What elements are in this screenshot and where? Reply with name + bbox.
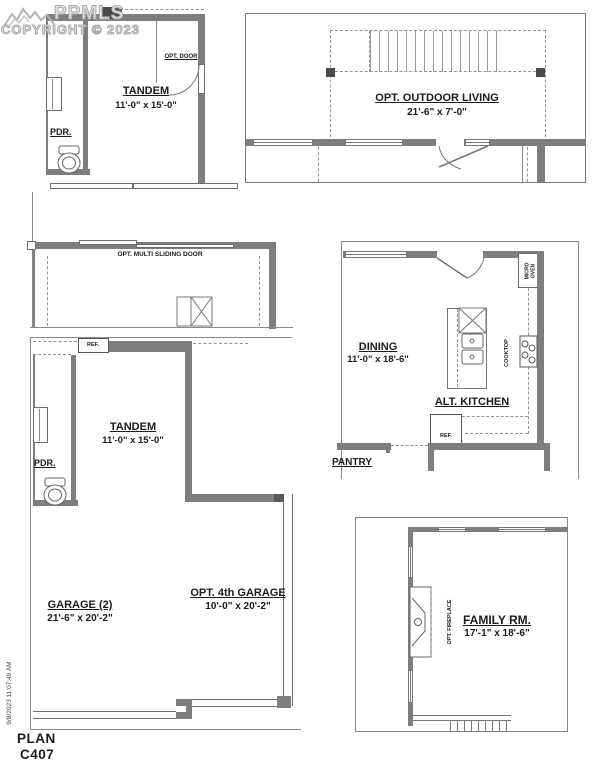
dashed-counter-line xyxy=(462,416,528,417)
post xyxy=(536,68,545,77)
panel-border xyxy=(341,241,579,242)
room-label-family: FAMILY RM. xyxy=(463,613,531,627)
wall-corner xyxy=(277,696,291,708)
wall-double-line xyxy=(283,494,293,706)
thin-line xyxy=(52,79,53,109)
room-label-alt-kitchen: ALT. KITCHEN xyxy=(435,396,509,408)
fireplace-label: OPT. FIREPLACE xyxy=(447,600,453,645)
sink-icon xyxy=(461,333,485,366)
wall-tick xyxy=(386,443,390,453)
cooktop-label: COOKTOP xyxy=(504,339,510,367)
floorplan-canvas: OPT. DOOR TANDEM 11'-0" x 15'-0" PDR. OP… xyxy=(0,0,614,768)
watermark-copyright: COPYRIGHT © 2023 xyxy=(1,22,140,37)
room-label-dining: DINING xyxy=(359,341,398,353)
toilet-icon xyxy=(40,478,70,506)
dashed-line xyxy=(193,343,248,344)
door-swing xyxy=(433,140,491,170)
room-label-pdr-upper: PDR. xyxy=(50,127,72,137)
room-dims-family: 17'-1" x 18'-6" xyxy=(464,628,529,639)
fireplace-icon xyxy=(409,586,435,660)
window-segment xyxy=(438,527,466,532)
dashed-line xyxy=(457,309,458,387)
room-label-tandem-upper: TANDEM xyxy=(123,85,169,97)
panel-border xyxy=(30,337,292,338)
thin-line xyxy=(522,146,523,182)
window-segment xyxy=(345,251,407,258)
stair-hatch xyxy=(450,720,509,732)
wall-segment xyxy=(428,450,434,471)
ref-label: REF. xyxy=(87,342,99,348)
panel-border xyxy=(30,327,293,328)
room-dims-tandem-upper: 11'-0" x 15'-0" xyxy=(115,100,177,111)
cooktop-icon xyxy=(519,335,539,369)
print-timestamp: 9/8/2023 11:07:49 AM xyxy=(6,618,16,768)
garage-door-line xyxy=(33,711,179,719)
room-label-tandem-lower: TANDEM xyxy=(110,421,156,433)
dashed-line xyxy=(33,354,71,355)
room-label-pdr-lower: PDR. xyxy=(34,458,56,468)
plan-number: C407 xyxy=(20,747,54,762)
wall-cabinet xyxy=(33,407,48,443)
dashed-line xyxy=(527,147,528,182)
thin-line xyxy=(39,409,40,441)
room-label-garage4: OPT. 4th GARAGE xyxy=(190,587,285,599)
wall-step-notch xyxy=(176,706,186,712)
dashed-line xyxy=(259,256,260,326)
wall-segment xyxy=(428,443,550,450)
cabinet-x-box xyxy=(176,296,214,328)
wall-segment xyxy=(185,494,284,502)
window-segment xyxy=(498,527,546,532)
island-x-box xyxy=(458,307,488,334)
refrigerator-box xyxy=(430,414,462,444)
wall-segment xyxy=(269,242,276,329)
ref-label: REF. xyxy=(440,433,452,439)
stair-hatch-above xyxy=(369,31,497,72)
toilet-icon xyxy=(54,146,84,174)
dashed-line xyxy=(318,147,319,182)
panel-border xyxy=(578,241,579,479)
dashed-line xyxy=(33,341,77,342)
opt-door-label: OPT. DOOR xyxy=(164,54,197,60)
sliding-door-label: OPT. MULTI SLIDING DOOR xyxy=(117,251,202,258)
wall-segment xyxy=(537,146,545,182)
room-label-pantry: PANTRY xyxy=(332,457,372,468)
dashed-line xyxy=(330,71,546,72)
door-swing-arc xyxy=(168,64,200,96)
window-segment xyxy=(345,139,403,146)
dashed-line xyxy=(115,9,204,10)
panel-border xyxy=(30,729,301,730)
wall-strip xyxy=(50,183,238,189)
room-dims-garage4: 10'-0" x 20'-2" xyxy=(205,601,270,612)
room-dims-tandem-lower: 11'-0" x 15'-0" xyxy=(102,435,164,446)
sliding-door-panel xyxy=(79,240,137,245)
micro-oven-label: MICRO OVEN xyxy=(526,263,537,280)
wall-tick xyxy=(132,183,134,189)
room-dims-garage2: 21'-6" x 20'-2" xyxy=(47,613,112,624)
wall-segment xyxy=(198,94,205,183)
wall-segment xyxy=(198,14,205,64)
wall-segment xyxy=(109,341,191,352)
thin-line xyxy=(156,21,157,83)
dashed-counter-line xyxy=(465,433,528,434)
door-swing xyxy=(435,256,487,282)
panel-border xyxy=(30,337,31,729)
dashed-line xyxy=(47,256,48,326)
window-segment xyxy=(253,139,313,146)
room-label-outdoor-living: OPT. OUTDOOR LIVING xyxy=(375,92,498,104)
wall-corner xyxy=(274,494,284,502)
wall-segment xyxy=(185,341,192,498)
wall-segment xyxy=(337,443,391,450)
oven-label: OVEN xyxy=(530,264,536,278)
room-label-garage2: GARAGE (2) xyxy=(48,599,113,611)
post xyxy=(326,68,335,77)
room-dims-dining: 11'-0" x 18'-6" xyxy=(347,354,409,365)
wall-segment xyxy=(544,450,550,471)
panel-border xyxy=(355,517,568,732)
dashed-opening xyxy=(391,445,428,446)
plan-word: PLAN xyxy=(17,731,56,746)
window-segment xyxy=(408,546,413,578)
window-segment xyxy=(408,670,413,703)
wall-cabinet xyxy=(46,77,62,111)
wall-segment xyxy=(33,249,35,328)
wall-segment xyxy=(71,355,76,504)
sliding-door-panel xyxy=(136,244,234,248)
garage-wall-double-line xyxy=(190,699,284,707)
room-dims-outdoor-living: 21'-6" x 7'-0" xyxy=(407,107,467,118)
thin-line xyxy=(413,715,511,716)
